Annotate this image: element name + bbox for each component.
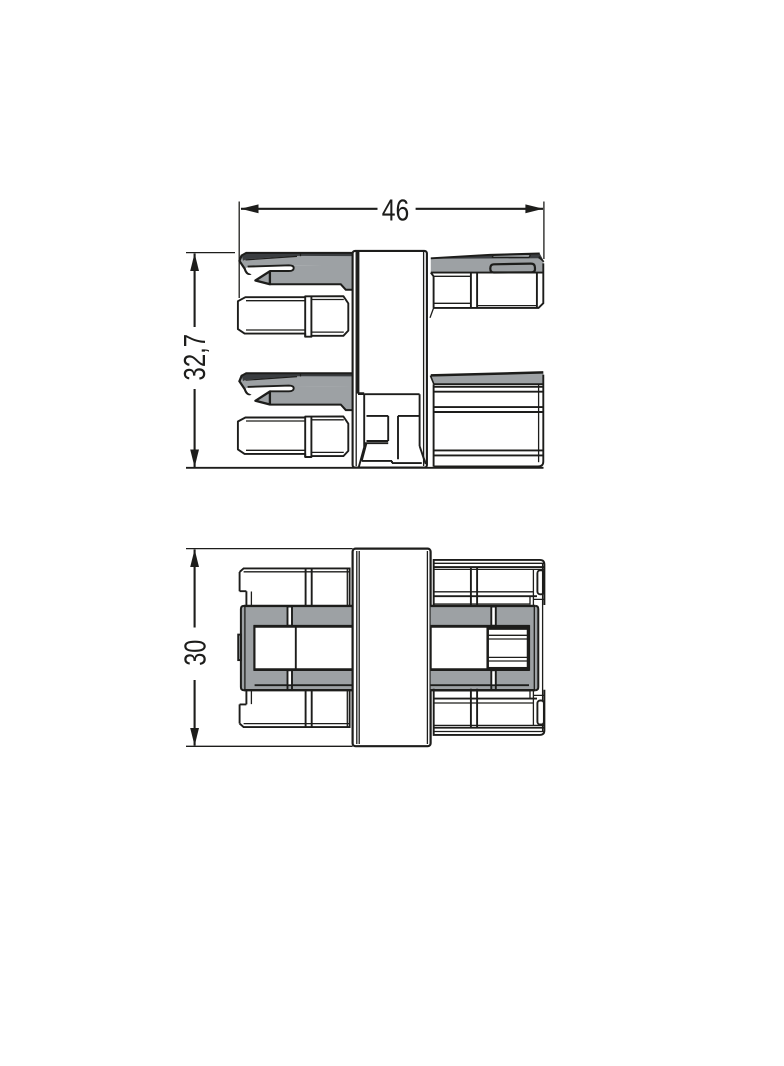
svg-text:30: 30 — [178, 640, 213, 666]
svg-text:32,7: 32,7 — [177, 334, 212, 381]
svg-text:46: 46 — [382, 193, 410, 228]
